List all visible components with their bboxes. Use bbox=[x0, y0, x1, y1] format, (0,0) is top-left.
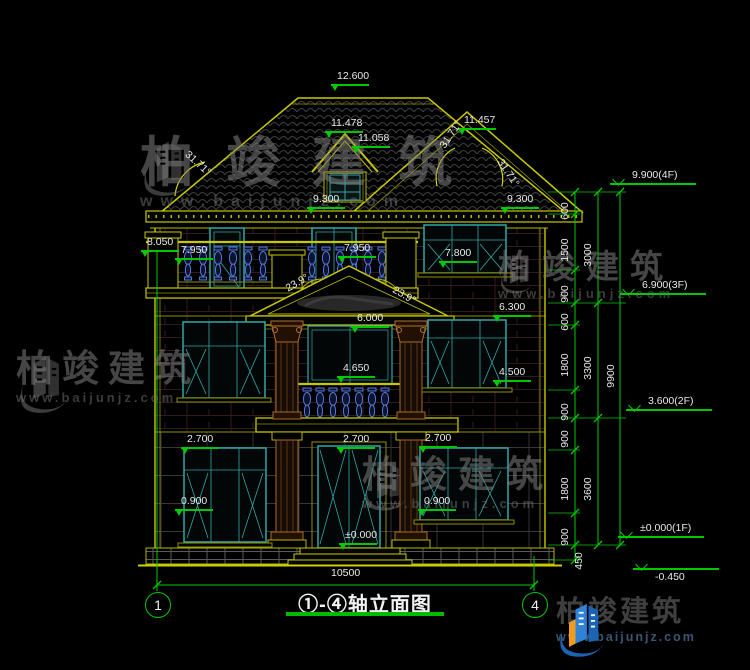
elevation-drawing bbox=[0, 0, 750, 670]
dim-label: 11.478 bbox=[331, 118, 362, 130]
dim-label: 900 bbox=[560, 285, 572, 303]
level-triangle-icon bbox=[352, 146, 360, 153]
level-marker-base: -0.450 bbox=[655, 572, 685, 584]
dim-label: 2.700 bbox=[343, 434, 369, 446]
dim-label: 7.950 bbox=[344, 243, 370, 255]
dim-label: 900 bbox=[560, 528, 572, 546]
dim-leader-line bbox=[633, 568, 719, 570]
dim-label: 6.300 bbox=[499, 302, 525, 314]
dim-label: 1800 bbox=[560, 353, 572, 376]
level-triangle-icon bbox=[339, 543, 347, 550]
level-triangle-icon bbox=[181, 447, 189, 454]
brand-logo-footer: 柏竣建筑 www.baijunjz.com bbox=[556, 598, 696, 644]
dim-label: 7.800 bbox=[445, 248, 471, 260]
dim-label: 600 bbox=[560, 202, 572, 220]
dim-label: 2.700 bbox=[187, 434, 213, 446]
dim-label: 2.700 bbox=[425, 433, 451, 445]
grid-bubble-axis-1: 1 bbox=[145, 592, 171, 618]
dim-label: 600 bbox=[560, 313, 572, 331]
watermark-left: 柏竣建筑 www.baijunjz.com bbox=[16, 350, 200, 404]
dim-label: 1800 bbox=[560, 477, 572, 500]
watermark-logo-icon bbox=[498, 250, 536, 296]
plinth bbox=[138, 548, 562, 566]
dim-label: 3300 bbox=[583, 356, 595, 379]
dim-label: 0.900 bbox=[424, 496, 450, 508]
dim-leader-line bbox=[620, 293, 706, 295]
dim-label: 9.300 bbox=[507, 194, 533, 206]
level-triangle-icon bbox=[337, 447, 345, 454]
dim-label: 7.950 bbox=[181, 245, 207, 257]
dim-label: 11.457 bbox=[464, 115, 495, 127]
level-triangle-icon bbox=[439, 261, 447, 268]
dim-leader-line bbox=[618, 536, 704, 538]
level-triangle-icon bbox=[351, 326, 359, 333]
level-marker-4f: 9.900(4F) bbox=[632, 170, 678, 182]
dim-label: 450 bbox=[574, 552, 586, 570]
watermark-roof: 柏竣建筑 www.baijunjz.com bbox=[140, 136, 484, 210]
dim-label: ±0.000 bbox=[345, 530, 377, 542]
level-triangle-icon bbox=[418, 509, 426, 516]
dim-label: 6.000 bbox=[357, 313, 383, 325]
level-triangle-icon bbox=[325, 131, 333, 138]
dim-label: 3600 bbox=[583, 477, 595, 500]
axis-4-label: 4 bbox=[531, 597, 539, 613]
axis-1-label: 1 bbox=[154, 597, 162, 613]
dim-label: 4.500 bbox=[499, 367, 525, 379]
dim-leader-line bbox=[626, 409, 712, 411]
dim-label: 0.900 bbox=[181, 496, 207, 508]
dim-label: 1500 bbox=[560, 238, 572, 261]
level-marker-1f: ±0.000(1F) bbox=[640, 523, 691, 535]
level-triangle-icon bbox=[501, 207, 509, 214]
level-triangle-icon bbox=[307, 207, 315, 214]
level-triangle-icon bbox=[338, 256, 346, 263]
dim-label: 4.650 bbox=[343, 363, 369, 375]
level-triangle-icon bbox=[493, 315, 501, 322]
level-triangle-icon bbox=[175, 258, 183, 265]
level-triangle-icon bbox=[141, 250, 149, 257]
dim-label: 900 bbox=[560, 403, 572, 421]
level-triangle-icon bbox=[337, 376, 345, 383]
level-triangle-icon bbox=[493, 380, 501, 387]
dim-label: 12.600 bbox=[337, 71, 369, 83]
level-triangle-icon bbox=[419, 446, 427, 453]
watermark-center: 柏竣建筑 www.baijunjz.com bbox=[362, 456, 554, 510]
dim-leader-line bbox=[610, 183, 696, 185]
level-marker-2f: 3.600(2F) bbox=[648, 396, 694, 408]
level-marker-3f: 6.900(3F) bbox=[642, 280, 688, 292]
watermark-logo-icon bbox=[16, 350, 72, 416]
watermark-logo-icon bbox=[362, 456, 410, 514]
cad-elevation-canvas: 柏竣建筑 www.baijunjz.com 柏竣建筑 www.baijunjz.… bbox=[0, 0, 750, 670]
watermark-logo-icon bbox=[140, 136, 194, 198]
dim-label: 9900 bbox=[606, 364, 618, 387]
level-triangle-icon bbox=[175, 509, 183, 516]
grid-bubble-axis-4: 4 bbox=[522, 592, 548, 618]
dim-label: 10500 bbox=[331, 568, 360, 580]
dim-label: 9.300 bbox=[313, 194, 339, 206]
drawing-title-underline bbox=[286, 612, 444, 616]
brand-logo-icon bbox=[556, 598, 608, 660]
dim-label: 8.050 bbox=[147, 237, 173, 249]
dim-label: 11.058 bbox=[358, 133, 389, 145]
dim-label: 900 bbox=[560, 430, 572, 448]
dim-label: 3000 bbox=[583, 243, 595, 266]
level-triangle-icon bbox=[331, 84, 339, 91]
